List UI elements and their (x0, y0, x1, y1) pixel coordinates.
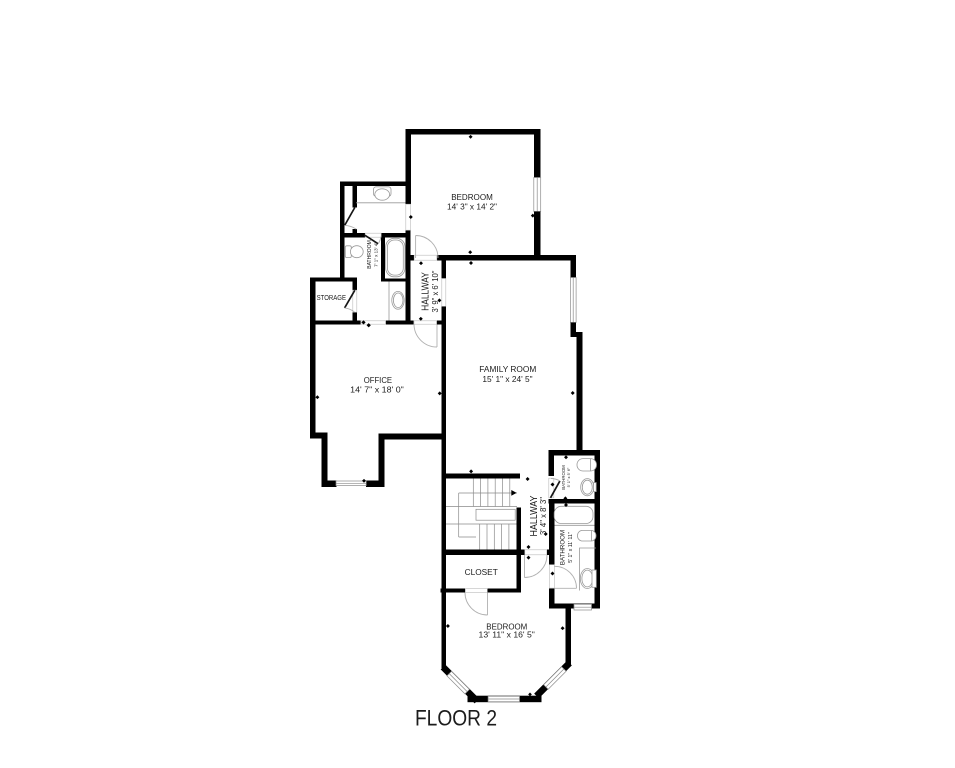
svg-text:13' 11" x 16' 5": 13' 11" x 16' 5" (479, 631, 535, 640)
svg-text:3' 4" x 8' 3": 3' 4" x 8' 3" (539, 497, 548, 535)
svg-text:STORAGE: STORAGE (317, 295, 347, 302)
svg-text:CLOSET: CLOSET (465, 568, 498, 577)
svg-text:15' 1" x 24' 5": 15' 1" x 24' 5" (482, 375, 532, 384)
svg-text:5' 1" x 11' 11": 5' 1" x 11' 11" (568, 532, 574, 563)
svg-text:BATHROOM: BATHROOM (560, 530, 567, 565)
svg-text:3' 9" x 6' 10": 3' 9" x 6' 10" (431, 270, 440, 312)
svg-text:7' 1" x 13' 4": 7' 1" x 13' 4" (373, 242, 378, 267)
svg-text:5' 1" x 5' 6": 5' 1" x 5' 6" (566, 467, 571, 487)
svg-text:BEDROOM: BEDROOM (451, 192, 493, 202)
svg-text:FLOOR 2: FLOOR 2 (415, 706, 497, 731)
svg-text:14' 7" x 18' 0": 14' 7" x 18' 0" (350, 385, 404, 394)
svg-text:FAMILY ROOM: FAMILY ROOM (479, 364, 536, 374)
svg-text:OFFICE: OFFICE (364, 375, 393, 385)
svg-text:BATHROOM: BATHROOM (367, 240, 373, 269)
svg-text:14' 3" x 14' 2": 14' 3" x 14' 2" (447, 203, 497, 212)
